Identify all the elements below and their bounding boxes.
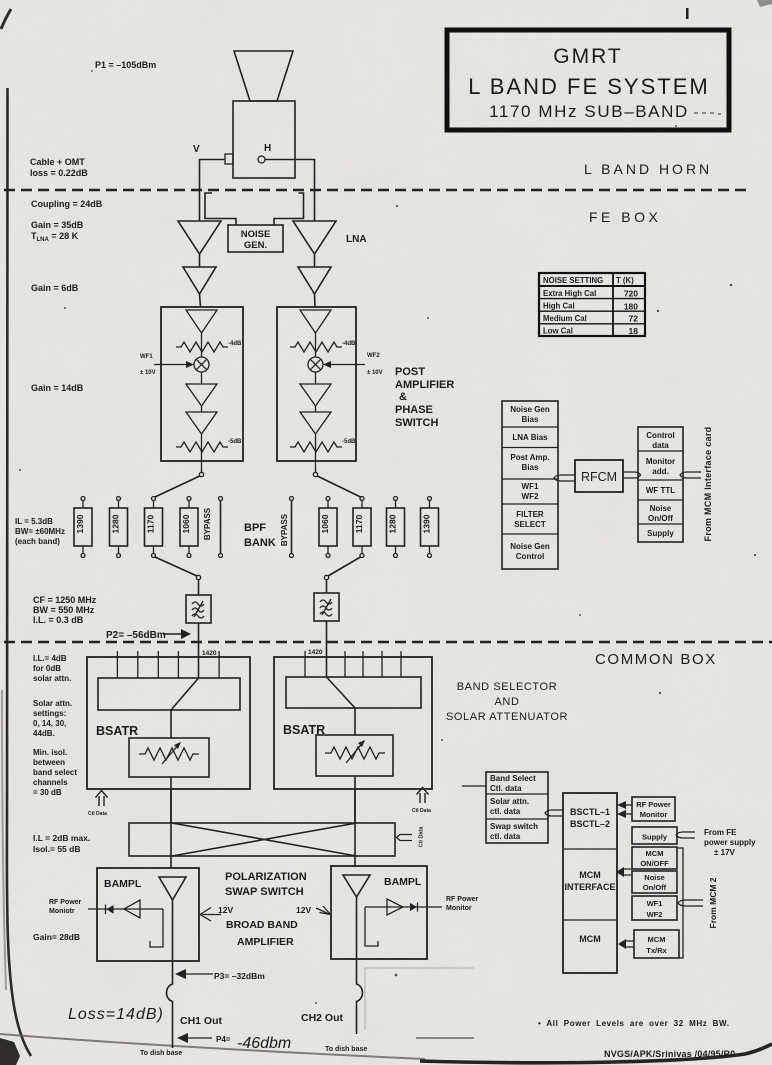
svg-text:SWITCH: SWITCH [395, 417, 438, 429]
svg-text:AMPLIFIER: AMPLIFIER [237, 936, 294, 948]
svg-text:for 0dB: for 0dB [33, 664, 61, 673]
svg-text:CH2 Out: CH2 Out [301, 1012, 344, 1024]
svg-text:Noise Gen: Noise Gen [510, 542, 550, 551]
svg-text:Gain= 28dB: Gain= 28dB [33, 932, 80, 942]
svg-text:NOISE: NOISE [241, 229, 271, 240]
svg-text:• All Power Levels are over 32: • All Power Levels are over 32 MHz BW. [538, 1019, 730, 1028]
svg-text:add.: add. [652, 467, 668, 476]
svg-text:Tx/Rx: Tx/Rx [646, 946, 667, 955]
svg-text:power supply: power supply [704, 838, 756, 847]
svg-text:between: between [33, 758, 65, 767]
svg-text:RFCM: RFCM [581, 470, 617, 484]
svg-text:SWAP SWITCH: SWAP SWITCH [225, 886, 304, 898]
svg-text:I.L.= 4dB: I.L.= 4dB [33, 654, 67, 663]
svg-text:BW= ±60MHz: BW= ±60MHz [15, 527, 65, 536]
svg-text:Noise: Noise [650, 504, 672, 513]
svg-text:I.L = 2dB max.: I.L = 2dB max. [33, 833, 90, 843]
svg-text:From MCM Interface card: From MCM Interface card [703, 427, 713, 542]
svg-text:BYPASS: BYPASS [203, 507, 212, 540]
svg-text:From FE: From FE [704, 828, 737, 837]
svg-text:1060: 1060 [181, 514, 191, 533]
svg-text:BSCTL–1: BSCTL–1 [570, 807, 610, 817]
svg-text:1170: 1170 [354, 515, 364, 534]
svg-text:V: V [193, 144, 200, 155]
svg-text:RF Power: RF Power [446, 896, 479, 903]
svg-text:Solar attn.: Solar attn. [33, 699, 72, 708]
svg-text:1390: 1390 [75, 514, 85, 533]
svg-text:180: 180 [624, 302, 638, 312]
svg-text:Min. isol.: Min. isol. [33, 748, 67, 757]
svg-text:solar attn.: solar attn. [33, 674, 71, 683]
svg-text:-5dB: -5dB [342, 439, 356, 445]
svg-text:Noise: Noise [644, 873, 664, 882]
svg-text:WF1: WF1 [522, 482, 539, 491]
svg-text:channels: channels [33, 778, 68, 787]
svg-text:WF1: WF1 [647, 899, 663, 908]
svg-text:WF TTL: WF TTL [646, 486, 675, 495]
svg-text:data: data [652, 441, 669, 450]
svg-text:Loss=14dB): Loss=14dB) [68, 1006, 164, 1023]
svg-text:T (K): T (K) [616, 276, 634, 285]
svg-text:P3= –32dBm: P3= –32dBm [214, 971, 265, 981]
svg-text:LNA Bias: LNA Bias [512, 433, 548, 442]
svg-text:AMPLIFIER: AMPLIFIER [395, 379, 454, 391]
svg-text:Gain = 14dB: Gain = 14dB [31, 383, 84, 393]
svg-text:Monitor: Monitor [646, 457, 675, 466]
svg-text:MCM: MCM [648, 935, 666, 944]
svg-text:On/Off: On/Off [643, 883, 667, 892]
svg-text:FILTER: FILTER [516, 510, 544, 519]
svg-text:On/Off: On/Off [648, 514, 673, 523]
svg-text:LNA: LNA [346, 234, 367, 245]
svg-text:(each band): (each band) [15, 537, 60, 546]
svg-text:&: & [399, 391, 407, 403]
svg-text:BSCTL–2: BSCTL–2 [570, 819, 610, 829]
svg-text:RF Power: RF Power [49, 899, 82, 906]
svg-text:BPF: BPF [244, 522, 266, 534]
svg-text:P1 = –105dBm: P1 = –105dBm [95, 60, 156, 70]
svg-text:settings:: settings: [33, 709, 66, 718]
svg-text:Gain = 35dB: Gain = 35dB [31, 220, 84, 230]
svg-text:MCM: MCM [646, 849, 664, 858]
svg-text:Band Select: Band Select [490, 774, 536, 783]
svg-text:P2= –56dBm: P2= –56dBm [106, 630, 166, 641]
svg-text:band select: band select [33, 768, 77, 777]
svg-text:BAMPL: BAMPL [384, 876, 422, 888]
svg-text:72: 72 [629, 314, 639, 324]
svg-text:Isol.= 55 dB: Isol.= 55 dB [33, 844, 80, 854]
svg-text:ctl. data: ctl. data [490, 807, 521, 816]
svg-text:Cable + OMT: Cable + OMT [30, 157, 85, 167]
svg-text:BAND SELECTOR: BAND SELECTOR [457, 681, 558, 693]
svg-text:1170: 1170 [146, 515, 156, 534]
svg-text:1420: 1420 [308, 649, 323, 656]
svg-text:Coupling = 24dB: Coupling = 24dB [31, 199, 103, 209]
svg-text:L BAND FE SYSTEM: L BAND FE SYSTEM [468, 74, 709, 99]
svg-text:Monitor: Monitor [640, 810, 668, 819]
svg-text:0, 14, 30,: 0, 14, 30, [33, 719, 66, 728]
svg-text:± 10V: ± 10V [367, 370, 383, 376]
svg-text:High Cal: High Cal [543, 302, 575, 311]
svg-text:WF2: WF2 [367, 353, 380, 359]
svg-text:CH1 Out: CH1 Out [180, 1015, 223, 1027]
svg-text:From MCM 2: From MCM 2 [708, 877, 718, 928]
svg-text:Supply: Supply [642, 833, 668, 842]
svg-text:P4=: P4= [216, 1035, 231, 1044]
svg-text:BSATR: BSATR [96, 724, 138, 738]
svg-text:BANK: BANK [244, 537, 276, 549]
svg-text:Bias: Bias [522, 463, 539, 472]
svg-text:± 10V: ± 10V [140, 370, 156, 376]
svg-text:Gain = 6dB: Gain = 6dB [31, 283, 79, 293]
svg-text:720: 720 [624, 289, 638, 299]
svg-text:NOISE SETTING: NOISE SETTING [543, 276, 603, 285]
svg-text:MCM: MCM [579, 870, 601, 880]
svg-text:18: 18 [629, 326, 639, 336]
svg-text:BW = 550 MHz: BW = 550 MHz [33, 605, 95, 615]
svg-text:Extra High Cal: Extra High Cal [543, 289, 596, 298]
svg-text:POST: POST [395, 366, 425, 378]
svg-text:WF2: WF2 [647, 910, 663, 919]
svg-text:Bias: Bias [522, 415, 539, 424]
svg-text:Ctl Data: Ctl Data [419, 826, 425, 848]
svg-text:H: H [264, 143, 271, 154]
svg-text:GEN.: GEN. [244, 240, 267, 251]
svg-text:Ctl Data: Ctl Data [412, 808, 431, 814]
svg-text:POLARIZATION: POLARIZATION [225, 871, 307, 883]
svg-text:COMMON BOX: COMMON BOX [595, 651, 717, 668]
svg-text:Moniotr: Moniotr [49, 908, 75, 915]
svg-text:1280: 1280 [111, 514, 121, 533]
svg-text:Post Amp.: Post Amp. [510, 453, 549, 462]
svg-text:-4dB: -4dB [342, 341, 356, 347]
svg-text:= 30 dB: = 30 dB [33, 788, 62, 797]
svg-text:SOLAR ATTENUATOR: SOLAR ATTENUATOR [446, 711, 568, 723]
svg-text:Control: Control [646, 431, 674, 440]
svg-text:1170 MHz SUB–BAND: 1170 MHz SUB–BAND [489, 102, 689, 121]
svg-text:MCM: MCM [579, 934, 601, 944]
svg-text:loss = 0.22dB: loss = 0.22dB [30, 168, 88, 178]
svg-text:44dB.: 44dB. [33, 729, 55, 738]
svg-text:AND: AND [494, 696, 519, 708]
svg-text:GMRT: GMRT [553, 45, 622, 68]
svg-text:BYPASS: BYPASS [280, 513, 289, 546]
svg-text:WF1: WF1 [140, 354, 153, 360]
svg-text:CF = 1250 MHz: CF = 1250 MHz [33, 595, 97, 605]
svg-text:IL = 5.3dB: IL = 5.3dB [15, 517, 53, 526]
svg-text:-5dB: -5dB [228, 439, 242, 445]
svg-text:Monitor: Monitor [446, 905, 472, 912]
svg-text:Noise Gen: Noise Gen [510, 405, 550, 414]
svg-text:Low Cal: Low Cal [543, 327, 573, 336]
svg-text:Supply: Supply [647, 529, 674, 538]
svg-text:ON/OFF: ON/OFF [640, 859, 669, 868]
svg-text:Ctl. data: Ctl. data [490, 784, 522, 793]
svg-text:Medium Cal: Medium Cal [543, 314, 587, 323]
svg-text:1390: 1390 [422, 514, 432, 533]
svg-text:-4dB: -4dB [228, 341, 242, 347]
svg-text:I.L. = 0.3 dB: I.L. = 0.3 dB [33, 615, 84, 625]
svg-text:1060: 1060 [320, 514, 330, 533]
svg-text:± 17V: ± 17V [714, 848, 736, 857]
svg-text:Control: Control [516, 552, 544, 561]
svg-text:Swap switch: Swap switch [490, 822, 538, 831]
svg-text:To dish base: To dish base [140, 1050, 182, 1057]
svg-text:Solar attn.: Solar attn. [490, 797, 529, 806]
svg-text:BROAD BAND: BROAD BAND [226, 919, 298, 931]
svg-text:RF Power: RF Power [636, 800, 671, 809]
svg-text:1420: 1420 [202, 650, 217, 657]
svg-text:SELECT: SELECT [514, 520, 546, 529]
svg-text:-46dbm: -46dbm [237, 1035, 291, 1052]
svg-text:PHASE: PHASE [395, 404, 433, 416]
svg-text:WF2: WF2 [522, 492, 539, 501]
svg-text:1280: 1280 [388, 514, 398, 533]
svg-text:BAMPL: BAMPL [104, 878, 142, 890]
svg-text:12V: 12V [218, 905, 233, 915]
svg-text:Ctl Data: Ctl Data [88, 811, 107, 817]
svg-text:ctl. data: ctl. data [490, 832, 521, 841]
svg-text:FE BOX: FE BOX [589, 209, 661, 225]
svg-text:12V: 12V [296, 905, 311, 915]
svg-text:To dish base: To dish base [325, 1046, 367, 1053]
svg-text:INTERFACE: INTERFACE [564, 882, 615, 892]
svg-text:L BAND HORN: L BAND HORN [584, 161, 712, 177]
